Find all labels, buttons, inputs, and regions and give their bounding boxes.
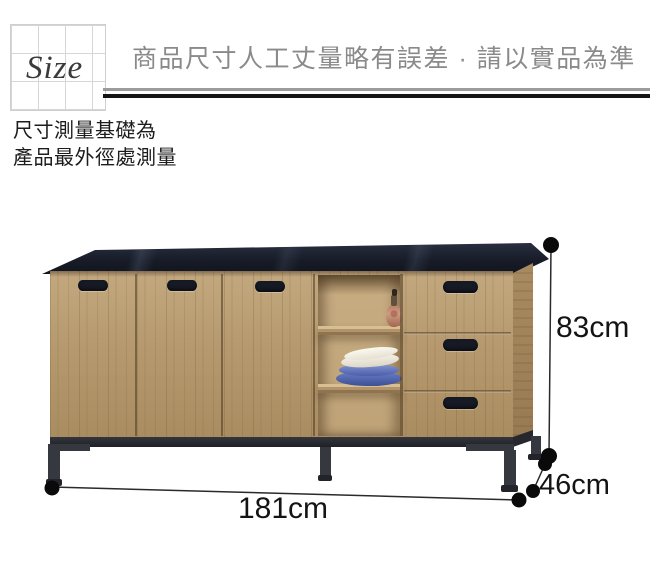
- leg-back-foot: [528, 454, 543, 460]
- depth-dimension-label: 46cm: [539, 469, 610, 502]
- door-1-handle: [78, 280, 108, 291]
- dim-dot-height-bottom: [541, 448, 557, 464]
- drawer-seam-1: [404, 332, 511, 335]
- drawer-2-handle: [443, 339, 478, 351]
- decor-vase-neck: [391, 295, 397, 306]
- height-dimension-label: 83cm: [556, 311, 629, 345]
- dim-dot-width-right: [512, 493, 527, 508]
- door-seam-3: [313, 274, 315, 436]
- note-line-2: 產品最外徑處測量: [13, 145, 177, 172]
- leg-right-foot: [501, 485, 518, 492]
- drawer-1-handle: [443, 281, 478, 293]
- drawer-seam-2: [404, 390, 511, 393]
- dim-dot-height-top: [543, 237, 559, 253]
- disclaimer-text: 商品尺寸人工丈量略有誤差 · 請以實品為準: [132, 39, 636, 75]
- note-line-1: 尺寸測量基礎為: [13, 118, 177, 145]
- drawer-3-handle: [443, 397, 478, 409]
- decor-vase-lid: [392, 289, 397, 296]
- leg-back-post: [531, 436, 541, 456]
- header-rule-gray: [103, 88, 650, 91]
- door-2-handle: [167, 280, 197, 291]
- size-title: Size: [26, 50, 83, 87]
- product-size-page: Size 商品尺寸人工丈量略有誤差 · 請以實品為準 尺寸測量基礎為 產品最外徑…: [0, 0, 650, 588]
- shelf-board-1: [318, 326, 400, 335]
- dim-dot-depth-front: [526, 484, 540, 498]
- leg-left-post: [48, 450, 60, 481]
- leg-middle-foot: [318, 475, 332, 481]
- door-3-handle: [255, 281, 285, 292]
- drawer-panel-edge: [400, 274, 403, 436]
- leg-right-post: [504, 450, 516, 487]
- door-seam-2: [221, 274, 223, 436]
- cabinet-side-panel: [513, 263, 533, 440]
- cabinet-body: [50, 271, 513, 438]
- base-rail: [50, 437, 513, 447]
- counter-shadow: [50, 271, 513, 277]
- measurement-note: 尺寸測量基礎為 產品最外徑處測量: [13, 118, 177, 172]
- leg-middle-post: [320, 447, 331, 477]
- door-seam-1: [135, 274, 137, 436]
- width-dimension-label: 181cm: [238, 492, 328, 526]
- dim-line-height: [549, 246, 551, 456]
- leg-left-foot: [46, 479, 62, 486]
- header-rule-black: [103, 94, 650, 98]
